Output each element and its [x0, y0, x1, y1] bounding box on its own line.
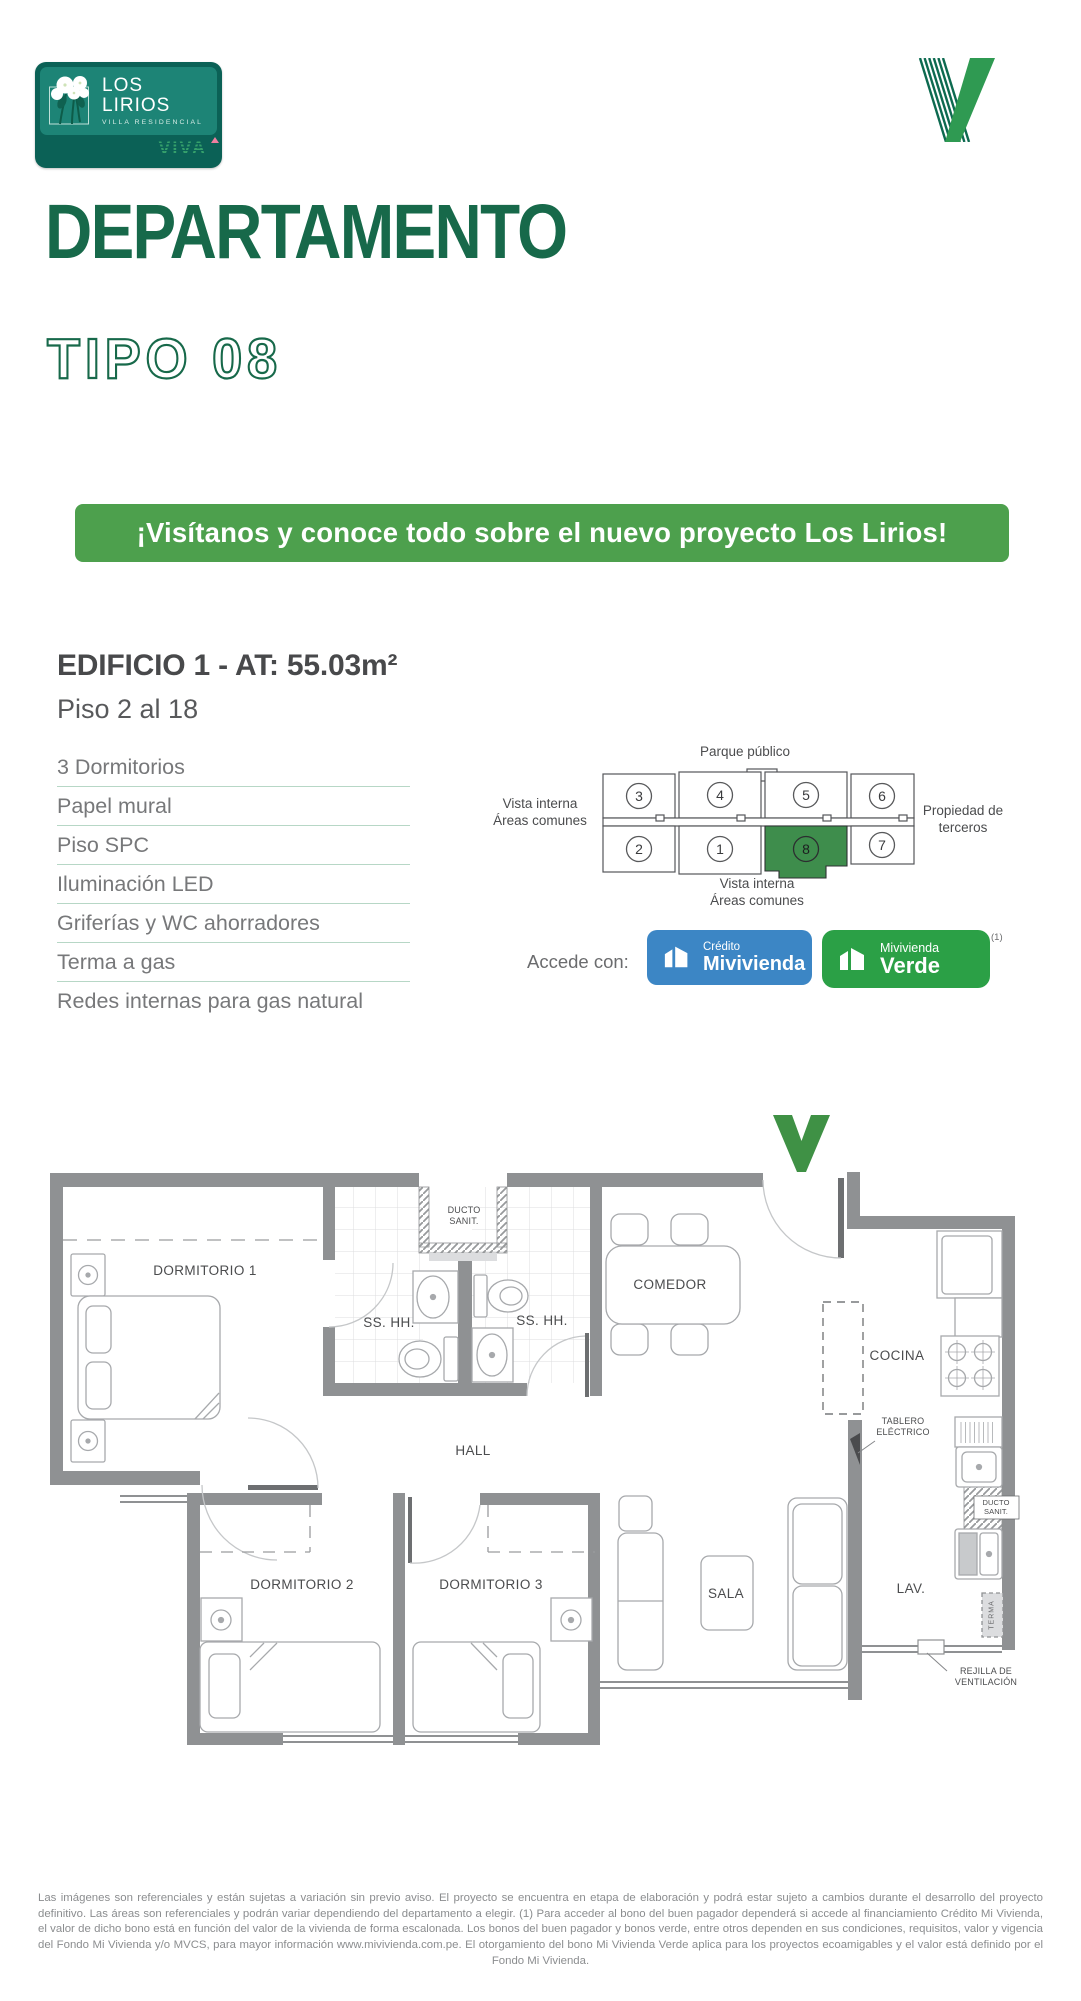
mivivienda-verde-badge: Mivivienda Verde — [822, 930, 990, 988]
tablero-line1: TABLERO — [876, 1416, 929, 1427]
rejilla-line2: VENTILACIÓN — [955, 1677, 1017, 1688]
vent-grille — [918, 1640, 944, 1654]
feature-item: Papel mural — [57, 787, 410, 826]
project-logo-text: LOS LIRIOS VILLA RESIDENCIAL — [102, 76, 209, 126]
ducto2-line2: SANIT. — [982, 1508, 1009, 1517]
keyplan-unit-7: 7 — [878, 837, 886, 853]
keyplan-unit-8: 8 — [802, 841, 810, 857]
badge-line1: Crédito — [703, 941, 805, 954]
room-label-ducto: DUCTO SANIT. — [448, 1205, 481, 1226]
room-label-tablero: TABLERO ELÉCTRICO — [876, 1416, 929, 1437]
entry-arrow-icon — [773, 1115, 830, 1172]
flyer-page: LOS LIRIOS VILLA RESIDENCIAL VIVA DEPART… — [0, 0, 1081, 2001]
credito-mivivienda-badge: Crédito Mivivienda — [647, 930, 812, 985]
keyplan-left-label-line1: Vista interna — [493, 795, 587, 812]
room-label-dormitorio2: DORMITORIO 2 — [250, 1577, 354, 1592]
building-floors: Piso 2 al 18 — [57, 694, 198, 725]
badge-line2: Mivivienda — [703, 954, 805, 975]
room-label-comedor: COMEDOR — [633, 1277, 706, 1292]
mivivienda-house-icon — [662, 940, 694, 975]
keyplan-left-label: Vista interna Áreas comunes — [493, 795, 587, 829]
duct-shelf — [429, 1253, 497, 1261]
footnote-ref: (1) — [991, 932, 1003, 943]
keyplan-right-label: Propiedad de terceros — [923, 802, 1003, 836]
keyplan-unit-4: 4 — [716, 787, 724, 803]
viva-triangle-icon — [211, 137, 219, 143]
features-list: 3 Dormitorios Papel mural Piso SPC Ilumi… — [57, 748, 410, 1020]
access-label: Accede con: — [527, 951, 629, 973]
room-label-sshh2: SS. HH. — [516, 1313, 568, 1328]
project-tagline: VILLA RESIDENCIAL — [102, 119, 209, 126]
viva-brand-text: VIVA — [158, 138, 207, 159]
room-label-dormitorio3: DORMITORIO 3 — [439, 1577, 543, 1592]
room-label-sala: SALA — [708, 1586, 744, 1601]
keyplan-left-label-line2: Áreas comunes — [493, 812, 587, 829]
feature-item: Griferías y WC ahorradores — [57, 904, 410, 943]
feature-item: Piso SPC — [57, 826, 410, 865]
room-label-terma: TERMA — [989, 1600, 996, 1630]
viva-v-icon — [898, 58, 1010, 142]
ducto-line2: SANIT. — [448, 1216, 481, 1227]
room-label-rejilla: REJILLA DE VENTILACIÓN — [955, 1666, 1017, 1687]
feature-item: 3 Dormitorios — [57, 748, 410, 787]
floorplan-drawing — [45, 1075, 1020, 1750]
promo-banner: ¡Visítanos y conoce todo sobre el nuevo … — [75, 504, 1009, 562]
project-name: LOS LIRIOS — [102, 76, 209, 116]
floorplan: DORMITORIO 1 SS. HH. DUCTO SANIT. SS. HH… — [45, 1075, 1020, 1750]
developer-brand-row: VIVA — [40, 135, 217, 161]
keyplan-right-label-line1: Propiedad de — [923, 802, 1003, 819]
keyplan-unit-5: 5 — [802, 787, 810, 803]
lilies-flower-icon — [48, 72, 94, 131]
keyplan-bottom-label-line2: Áreas comunes — [710, 892, 804, 909]
project-logo-panel: LOS LIRIOS VILLA RESIDENCIAL — [40, 67, 217, 135]
room-label-ducto2: DUCTO SANIT. — [982, 1499, 1009, 1516]
living-furniture — [618, 1496, 847, 1670]
bedroom3-furniture — [413, 1505, 595, 1732]
badge-line2: Verde — [880, 955, 940, 976]
page-subtitle: TIPO 08 — [47, 326, 282, 392]
leader-lines — [858, 1441, 947, 1671]
keyplan-right-label-line2: terceros — [923, 819, 1003, 836]
page-title: DEPARTAMENTO — [45, 188, 566, 277]
tablero-line2: ELÉCTRICO — [876, 1427, 929, 1438]
keyplan-unit-2: 2 — [635, 841, 643, 857]
rejilla-line1: REJILLA DE — [955, 1666, 1017, 1677]
keyplan-unit-6: 6 — [878, 788, 886, 804]
feature-item: Terma a gas — [57, 943, 410, 982]
bedroom2-furniture — [200, 1505, 380, 1732]
keyplan-diagram: 3 4 5 6 2 1 8 7 — [601, 768, 916, 882]
room-label-lav: LAV. — [897, 1581, 926, 1596]
feature-item: Redes internas para gas natural — [57, 982, 410, 1020]
keyplan-top-label: Parque público — [700, 743, 790, 760]
project-logo-card: LOS LIRIOS VILLA RESIDENCIAL VIVA — [35, 62, 222, 168]
ducto-line1: DUCTO — [448, 1205, 481, 1216]
room-label-cocina: COCINA — [870, 1348, 925, 1363]
room-label-hall: HALL — [455, 1443, 490, 1458]
feature-item: Iluminación LED — [57, 865, 410, 904]
building-heading: EDIFICIO 1 - AT: 55.03m² — [57, 649, 397, 683]
legal-disclaimer: Las imágenes son referenciales y están s… — [38, 1891, 1043, 1970]
keyplan-unit-3: 3 — [635, 788, 643, 804]
room-label-dormitorio1: DORMITORIO 1 — [153, 1263, 257, 1278]
mivivienda-house-icon — [837, 941, 871, 978]
keyplan-unit-1: 1 — [716, 841, 724, 857]
room-label-sshh1: SS. HH. — [363, 1315, 415, 1330]
